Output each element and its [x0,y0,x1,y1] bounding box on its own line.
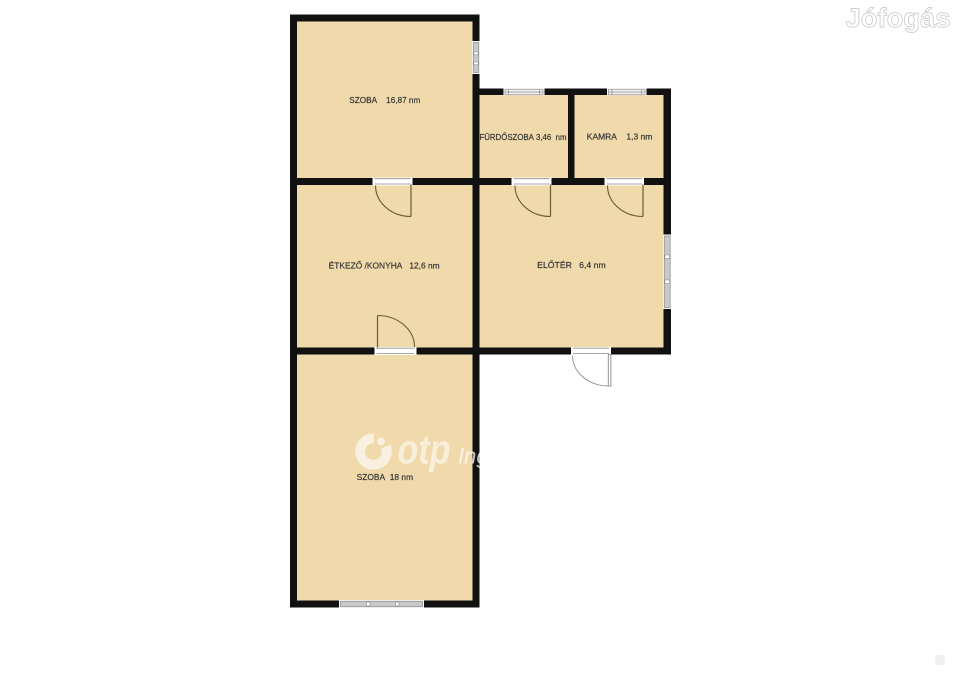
svg-text:KAMRA 1,3 nm: KAMRA 1,3 nm [587,132,653,142]
svg-text:Jófogás: Jófogás [846,3,951,33]
svg-text:otp: otp [398,426,451,473]
svg-text:SZOBA 16,87 nm: SZOBA 16,87 nm [349,95,420,105]
svg-text:SZOBA 18 nm: SZOBA 18 nm [357,472,414,482]
svg-text:FÜRDŐSZOBA 3,46 nm: FÜRDŐSZOBA 3,46 nm [480,132,567,142]
svg-text:Ingatlanpont: Ingatlanpont [458,444,580,469]
svg-text:ELŐTÉR 6,4 nm: ELŐTÉR 6,4 nm [537,260,606,270]
svg-text:ÉTKEZŐ /KONYHA 12,6 nm: ÉTKEZŐ /KONYHA 12,6 nm [329,261,440,271]
